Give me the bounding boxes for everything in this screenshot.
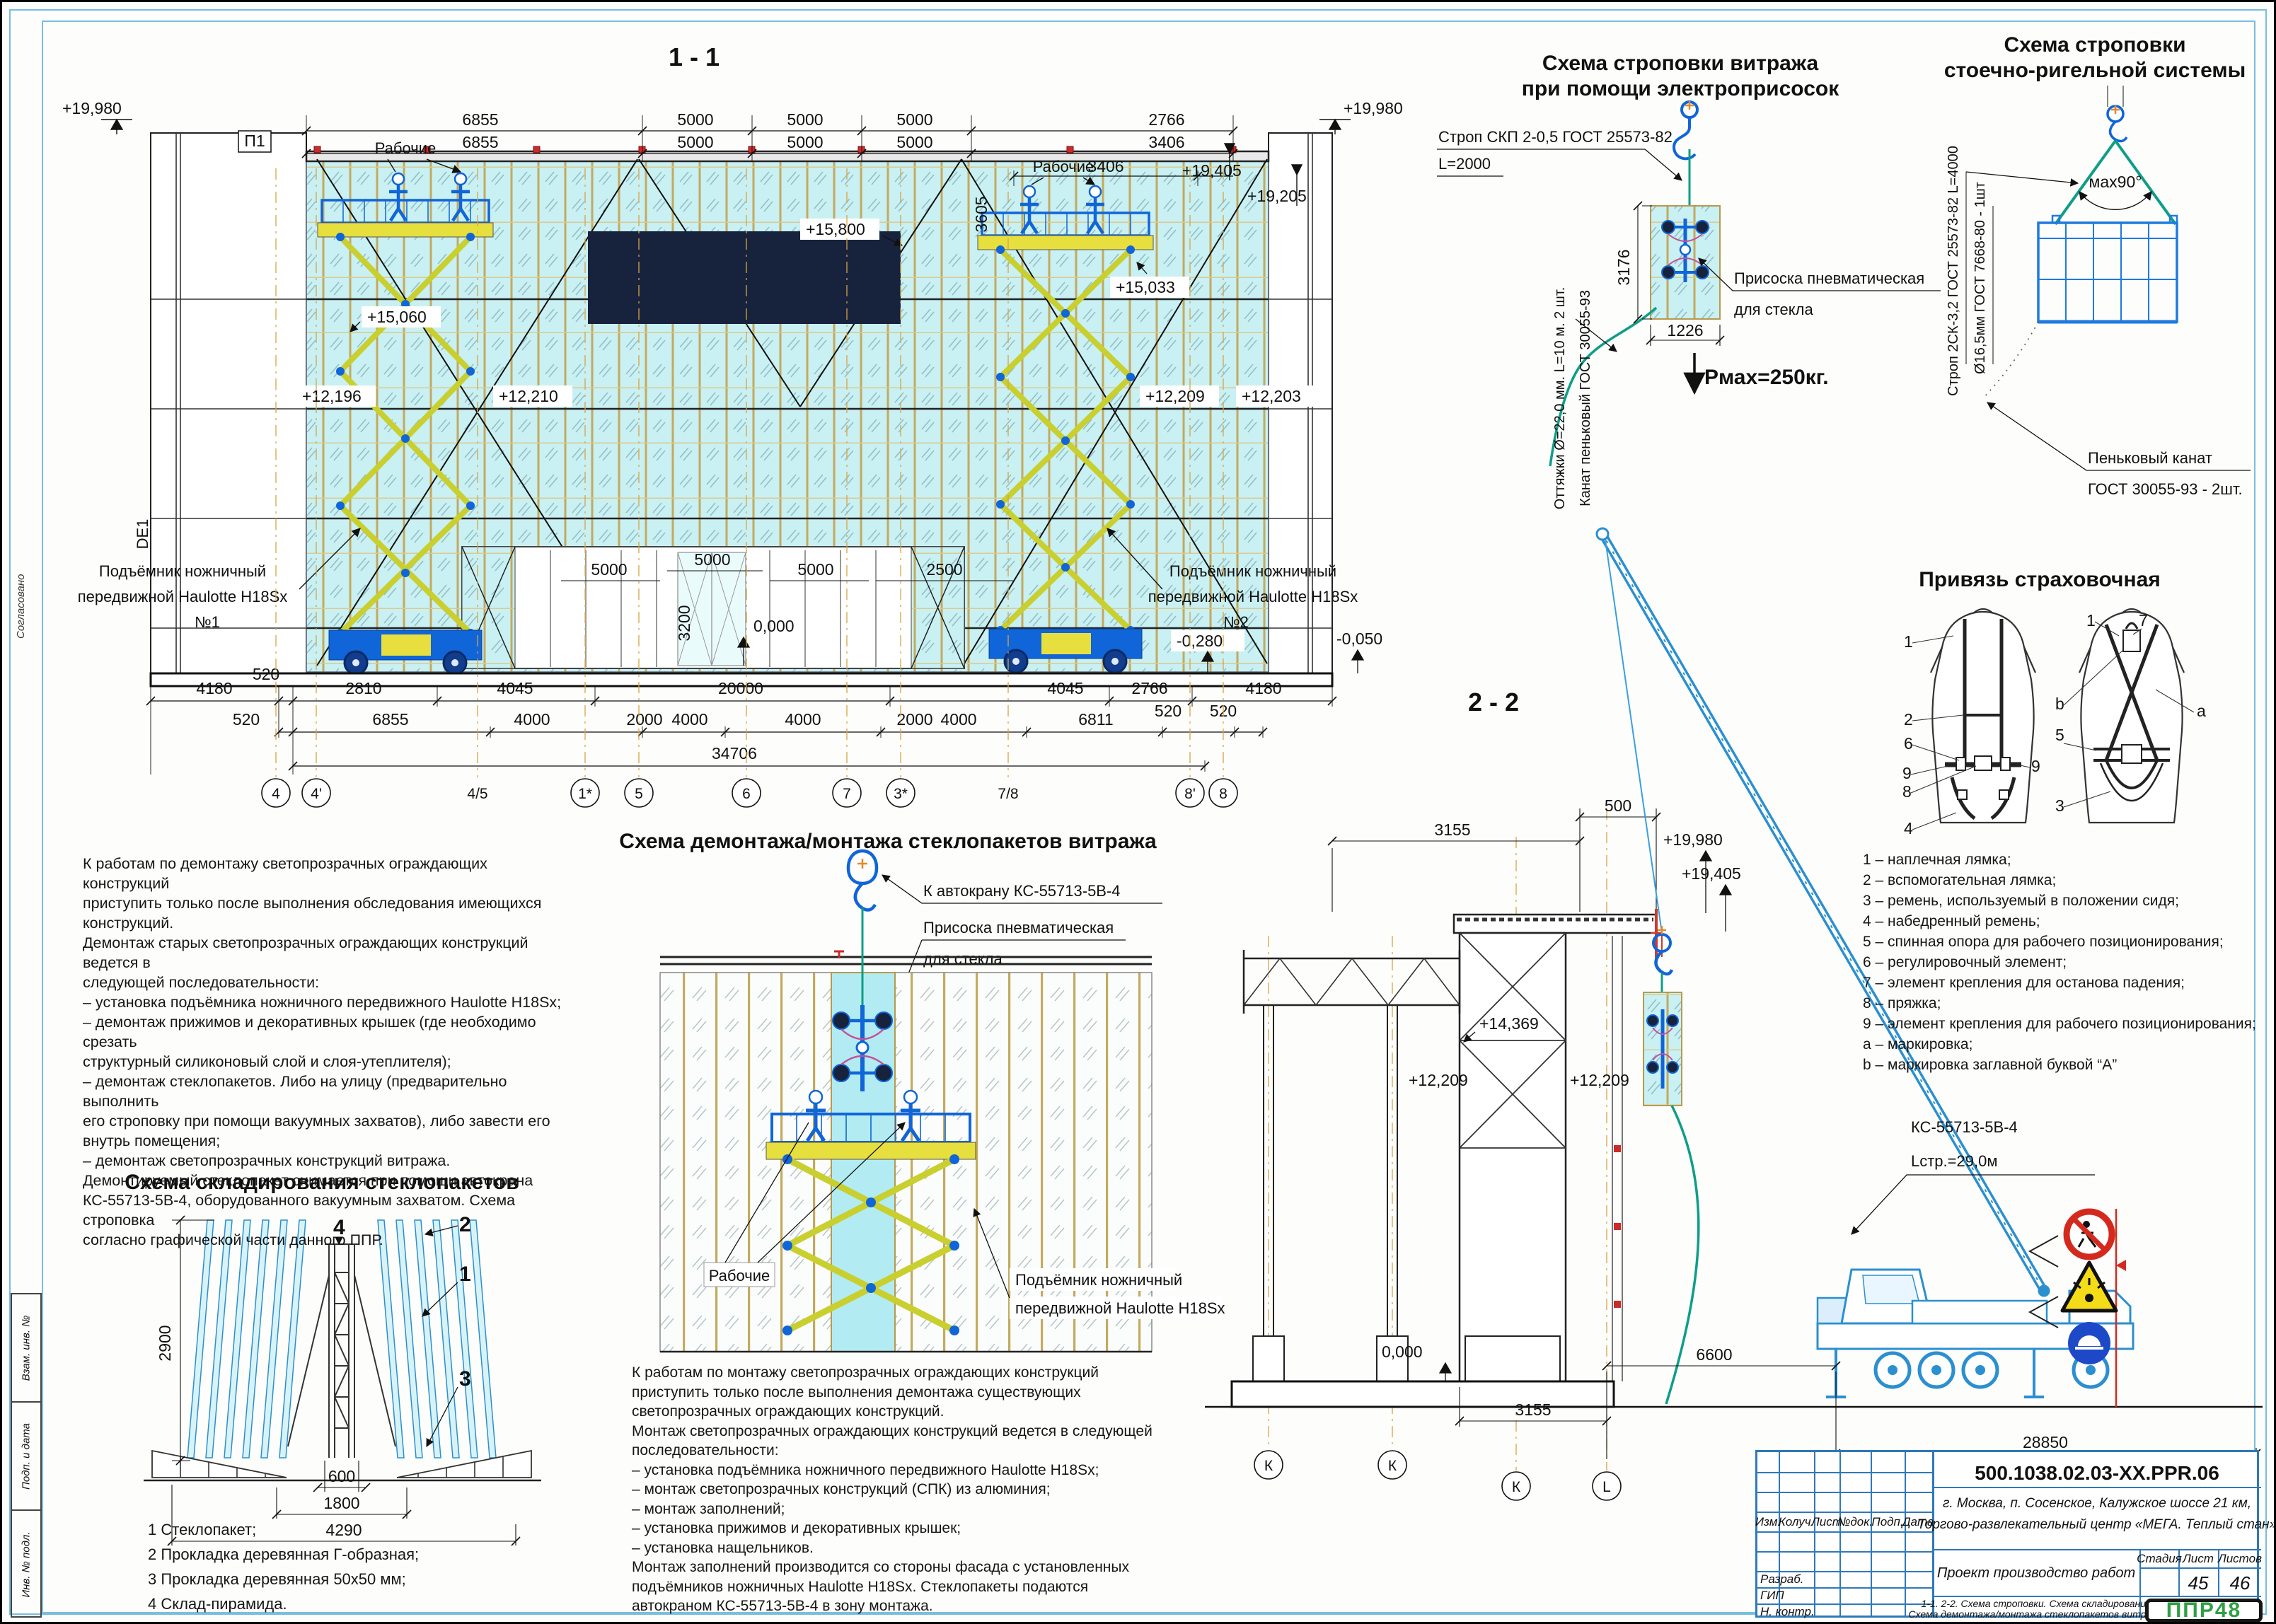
elevation: +19,980 [1663,830,1723,849]
rope-label: ГОСТ 30055-93 - 2шт. [2088,480,2243,498]
approved-label: Согласовано [15,625,27,639]
svg-text:0,000: 0,000 [753,617,795,635]
drawing-sheet: 1 - 1 [0,0,2276,1624]
svg-text:7: 7 [2139,611,2148,630]
angle-label: мах90° [2089,173,2142,191]
svg-text:4: 4 [272,786,280,802]
dim: 520 [1155,702,1182,720]
svg-text:+12,210: +12,210 [499,387,558,405]
suction-label: Присоска пневматическая [1734,269,1924,287]
svg-text:3: 3 [2055,796,2064,815]
dim: 5000 [896,110,932,129]
legend-item: 1 Стеклопакет; [148,1517,558,1542]
elevation: +12,209 [1570,1071,1629,1089]
dim: 3176 [1614,249,1633,285]
elevation: +14,369 [1479,1014,1539,1033]
elevation: +19,980 [1344,99,1403,117]
tb-col: №док. [1837,1515,1873,1529]
lift-label: Подъёмник ножничный [1015,1271,1182,1289]
svg-text:Схема строповки витража: Схема строповки витража [1542,52,1819,75]
sling-label: Ø16,5мм ГОСТ 7668-80 - 1шт [1972,182,1988,374]
sling-scheme-frame: Схема строповки стоечно-ригельной систем… [1944,33,2251,498]
stamp-cell: Инв. № подл. [12,1511,40,1618]
svg-text:4: 4 [1904,819,1913,837]
section-1-1-title: 1 - 1 [669,42,720,71]
object-location: Торгово-развлекательный центр «МЕГА. Теп… [1917,1517,2276,1533]
svg-text:при помощи электроприсосок: при помощи электроприсосок [1522,77,1840,100]
sheets-total: 46 [2230,1572,2251,1594]
dim: 28850 [2023,1433,2068,1451]
lift-label: передвижной Haulotte H18Sx [1015,1299,1225,1317]
legend-item: 5 – спинная опора для рабочего позициони… [1863,932,2259,952]
dim: 4000 [671,710,707,729]
pmax-label: Рмах=250кг. [1704,366,1829,389]
svg-text:4/5: 4/5 [467,786,487,802]
svg-text:№2: №2 [1223,613,1249,631]
grid-bubble: К [1264,1458,1273,1474]
sling-label: L=2000 [1438,155,1491,173]
sheet-label: Лист [2183,1552,2214,1566]
sling-label: Строп СКП 2-0,5 ГОСТ 25573-82 [1438,128,1673,146]
rope-label: Пеньковый канат [2088,449,2212,467]
suction-label: для стекла [1734,301,1813,318]
dim: 520 [233,710,260,729]
svg-text:стоечно-ригельной системы: стоечно-ригельной системы [1944,59,2246,82]
svg-text:8': 8' [1184,786,1196,802]
stamp-label: Инв. № подл. [21,1531,33,1597]
legend-item: 1 – наплечная лямка; [1863,849,2259,870]
dim: 4000 [940,710,976,729]
dim: 5000 [787,133,823,151]
tb-col: Изм. [1755,1515,1781,1529]
legend-item: b – маркировка заглавной буквой “А” [1863,1055,2259,1075]
title-block: Изм. Колуч. Лист №док. Подп. Дата Разраб… [1755,1450,2259,1618]
dim: 4000 [514,710,550,729]
dim: 6855 [462,133,498,151]
dim: 6600 [1696,1345,1732,1364]
guy-rope-label: Оттяжки Ø=22,0 мм. L=10 м. 2 шт. [1552,287,1568,510]
svg-text:1: 1 [1904,632,1913,651]
elevation: +19,205 [1247,187,1307,205]
callout: 1 [459,1263,471,1286]
elevation: -0,280 [1177,632,1223,650]
elevation: -0,050 [1336,630,1382,648]
dim: 34706 [712,744,757,762]
svg-text:6: 6 [1904,734,1913,753]
dim: 500 [1605,796,1631,815]
mullion-frame [2038,216,2177,322]
workers-label: Рабочие [709,1267,770,1284]
dim: 2810 [345,679,381,697]
svg-text:5000: 5000 [591,560,627,579]
workers-label-left: Рабочие [375,139,437,157]
dim: 3406 [1087,157,1123,175]
svg-text:Схема демонтажа/монтажа стекло: Схема демонтажа/монтажа стеклопакетов ви… [619,830,1157,853]
dim: 5000 [677,133,713,151]
svg-text:передвижной Haulotte H18Sx: передвижной Haulotte H18Sx [78,588,288,605]
left-stamp: Взам. инв. № Подп. и дата Инв. № подл. [11,1293,42,1618]
sheet-title: Схема демонтажа/монтажа стеклопакетов ви… [1908,1608,2164,1620]
sheet-number: 45 [2188,1572,2209,1594]
svg-text:9: 9 [1902,764,1912,782]
tb-role: Н. контр. [1760,1605,1815,1619]
legend-item: 4 – набедренный ремень; [1863,911,2259,932]
svg-text:a: a [2197,702,2206,720]
grid-bubble: L [1602,1479,1611,1495]
legend-item: 7 – элемент крепления для останова паден… [1863,973,2259,993]
tb-role: Разраб. [1760,1572,1804,1587]
dim: 2000 [626,710,662,729]
dim: 1800 [323,1494,359,1512]
dim: 2766 [1148,110,1184,129]
grid-bubble: К [1388,1458,1397,1474]
dim: 3605 [972,196,990,232]
dim: 3406 [1148,133,1184,151]
tb-role: ГИП [1760,1589,1784,1603]
svg-text:8: 8 [1902,782,1912,801]
svg-text:2: 2 [1904,710,1913,729]
dim: 6855 [462,110,498,129]
dim: 2000 [896,710,932,729]
svg-text:5000: 5000 [797,560,833,579]
dim: 4180 [196,679,232,697]
crane-label: Lстр.=29,0м [1911,1152,1997,1170]
legend-item: 2 – вспомогательная лямка; [1863,870,2259,891]
hook-and-panel [1644,926,1699,1404]
dim: 6855 [372,710,408,729]
dim: 2766 [1131,679,1167,697]
to-crane-label: К автокрану КС-55713-5В-4 [923,882,1121,900]
svg-text:7: 7 [843,786,851,802]
doc-number: 500.1038.02.03-XX.PPR.06 [1975,1462,2219,1485]
ppr48-logo: ППР48 [2145,1599,2263,1623]
stamp-cell: Подп. и дата [12,1403,40,1511]
sheets-label: Листов [2218,1552,2262,1566]
elevation: 0,000 [1382,1342,1423,1361]
sling-label: Строп 2СК-3,2 ГОСТ 25573-82 L=4000 [1946,146,1961,396]
dim: 4180 [1245,679,1281,697]
svg-text:Подъёмник ножничный: Подъёмник ножничный [1169,562,1336,580]
crane-label: КС-55713-5В-4 [1911,1118,2018,1136]
svg-text:+15,033: +15,033 [1116,278,1175,296]
sheet-title: 1-1. 2-2. Схема строповки. Схема складир… [1922,1598,2151,1609]
svg-text:+15,800: +15,800 [806,220,865,238]
project-name: Проект производство работ [1937,1565,2135,1582]
svg-text:9: 9 [2031,757,2040,775]
legend-item: 3 – ремень, используемый в положении сид… [1863,891,2259,911]
legend-item: 3 Прокладка деревянная 50х50 мм; [148,1567,558,1591]
tb-col: Подп. [1871,1515,1903,1529]
svg-text:+15,060: +15,060 [367,308,427,326]
grid-bubble: К [1512,1479,1521,1495]
callout: 3 [459,1367,471,1391]
svg-text:8: 8 [1219,786,1227,802]
sling-scheme-suction: Схема строповки витража при помощи элект… [1437,52,1941,509]
dim: 5000 [787,110,823,129]
storage-pyramid [288,1244,395,1458]
workers-label-right: Рабочие [1033,158,1094,175]
dim: 600 [328,1467,355,1485]
svg-text:2500: 2500 [926,560,962,579]
svg-text:4': 4' [311,786,322,802]
dim: 1226 [1667,321,1703,340]
elevation: +19,405 [1182,161,1242,180]
svg-text:5: 5 [635,786,643,802]
dim: 3155 [1515,1400,1551,1419]
object-location: г. Москва, п. Сосенское, Калужское шоссе… [1943,1496,2251,1512]
stamp-label: Взам. инв. № [21,1315,33,1381]
legend-item: 8 – пряжка; [1863,993,2259,1014]
legend-item: 9 – элемент крепления для рабочего позиц… [1863,1014,2259,1034]
dim: 2900 [156,1325,174,1361]
dim: 4045 [1047,679,1083,697]
storage-legend: 1 Стеклопакет;2 Прокладка деревянная Г-о… [148,1517,558,1616]
axis-label-p1: П1 [244,132,265,150]
svg-text:+12,209: +12,209 [1145,387,1205,405]
svg-text:Подъёмник ножничный: Подъёмник ножничный [99,562,266,580]
svg-text:b: b [2055,695,2064,713]
svg-text:№1: №1 [195,613,220,631]
dim: 4000 [785,710,821,729]
dim: 4045 [497,679,533,697]
svg-text:передвижной Haulotte H18Sx: передвижной Haulotte H18Sx [1148,588,1358,605]
suction-label: Присоска пневматическая [923,919,1114,936]
dim: 5000 [896,133,932,151]
svg-text:Привязь страховочная: Привязь страховочная [1919,568,2161,591]
dim: 20000 [718,679,763,697]
svg-text:6: 6 [742,786,751,802]
tb-col: Колуч. [1779,1515,1815,1529]
svg-text:Схема строповки: Схема строповки [2004,33,2185,57]
svg-text:5000: 5000 [694,550,730,569]
svg-text:5: 5 [2055,726,2064,744]
stamp-cell: Взам. инв. № [12,1294,40,1403]
svg-text:+12,196: +12,196 [302,387,362,405]
legend-item: 4 Склад-пирамида. [148,1591,558,1616]
demontage-scheme: Схема демонтажа/монтажа стеклопакетов ви… [619,830,1225,1352]
svg-text:1: 1 [2086,611,2096,630]
elevation: +19,405 [1682,864,1741,883]
svg-text:+12,203: +12,203 [1242,387,1301,405]
svg-text:3200: 3200 [675,605,693,641]
harness-scheme: Привязь страховочная [1902,568,2206,837]
demontage-notes: К работам по демонтажу светопрозрачных о… [83,854,572,1250]
svg-text:1*: 1* [578,786,592,802]
dim: 6811 [1078,710,1113,729]
svg-text:7/8: 7/8 [998,786,1018,802]
harness-legend: 1 – наплечная лямка;2 – вспомогательная … [1863,849,2259,1075]
legend-item: 2 Прокладка деревянная Г-образная; [148,1542,558,1567]
legend-item: 6 – регулировочный элемент; [1863,952,2259,973]
axis-label-de1: DE1 [134,519,151,550]
dim: 5000 [677,110,713,129]
svg-text:3*: 3* [894,786,908,802]
dark-screen-panel [588,231,901,324]
falling-load-warning-icon [2062,1263,2116,1311]
stamp-label: Подп. и дата [21,1423,33,1490]
elevation: +12,209 [1409,1071,1468,1089]
stage-label: Стадия [2137,1552,2182,1566]
facade-section-1-1: 1 - 1 [62,42,1403,807]
elevation: +19,980 [62,99,122,117]
dim: 3155 [1434,820,1470,839]
section-2-2-title: 2 - 2 [1468,688,1519,717]
montage-notes: К работам по монтажу светопрозрачных огр… [632,1363,1155,1616]
legend-item: a – маркировка; [1863,1034,2259,1055]
